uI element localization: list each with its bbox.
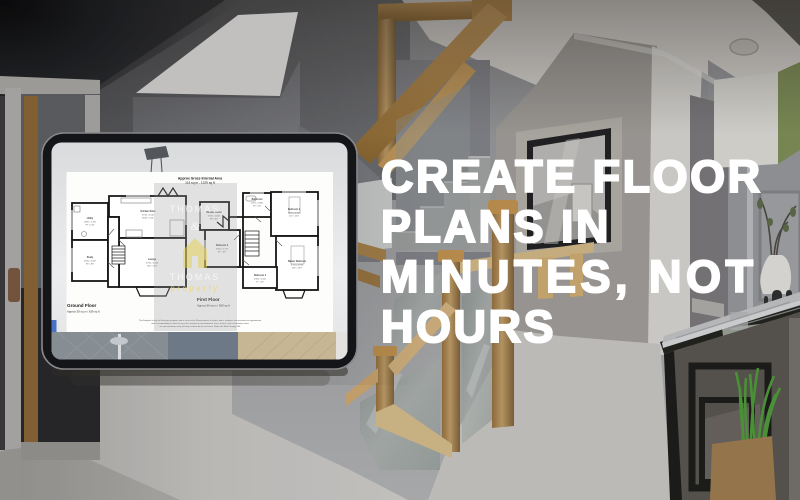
svg-text:7'7" x 6'9": 7'7" x 6'9" bbox=[256, 281, 265, 283]
svg-text:Study: Study bbox=[87, 256, 94, 259]
svg-text:Bathroom: Bathroom bbox=[252, 198, 263, 201]
svg-text:10'6" x 13'9": 10'6" x 13'9" bbox=[292, 267, 303, 269]
svg-text:11'2" x 10'3": 11'2" x 10'3" bbox=[289, 215, 300, 217]
svg-text:Kitchen Diner: Kitchen Diner bbox=[141, 210, 156, 213]
svg-text:80'10" x 12'4": 80'10" x 12'4" bbox=[142, 217, 154, 219]
svg-text:THOMAS: THOMAS bbox=[170, 204, 221, 214]
svg-text:Utility: Utility bbox=[87, 217, 94, 220]
svg-text:Bedroom 2: Bedroom 2 bbox=[288, 209, 301, 211]
svg-text:2.36m x 2.10m: 2.36m x 2.10m bbox=[254, 279, 267, 281]
svg-text:2.98m x 1.79m: 2.98m x 1.79m bbox=[84, 222, 97, 224]
svg-text:Ground Floor: Ground Floor bbox=[67, 303, 97, 308]
svg-text:6'9" x 5'6": 6'9" x 5'6" bbox=[253, 205, 262, 207]
svg-text:&: & bbox=[190, 219, 200, 233]
svg-text:THOMAS: THOMAS bbox=[170, 272, 221, 282]
svg-text:2.07m x 1.68m: 2.07m x 1.68m bbox=[251, 203, 264, 205]
svg-text:3.73m x 3.54m: 3.73m x 3.54m bbox=[142, 215, 155, 217]
svg-text:9'6" x 8'6": 9'6" x 8'6" bbox=[86, 263, 95, 265]
svg-text:3.2 m x 4.25m: 3.2 m x 4.25m bbox=[291, 265, 303, 267]
svg-text:property: property bbox=[170, 284, 219, 293]
svg-text:3.49m x 3.15m: 3.49m x 3.15m bbox=[288, 213, 301, 215]
svg-text:Approx 59 sq m / 639 sq ft: Approx 59 sq m / 639 sq ft bbox=[67, 310, 100, 314]
svg-text:9'9" x 5'10": 9'9" x 5'10" bbox=[85, 224, 95, 226]
svg-text:Bedroom 4: Bedroom 4 bbox=[254, 274, 267, 277]
svg-text:2.90m x 2.60m: 2.90m x 2.60m bbox=[84, 261, 97, 263]
svg-text:Master Bedroom: Master Bedroom bbox=[288, 260, 306, 263]
